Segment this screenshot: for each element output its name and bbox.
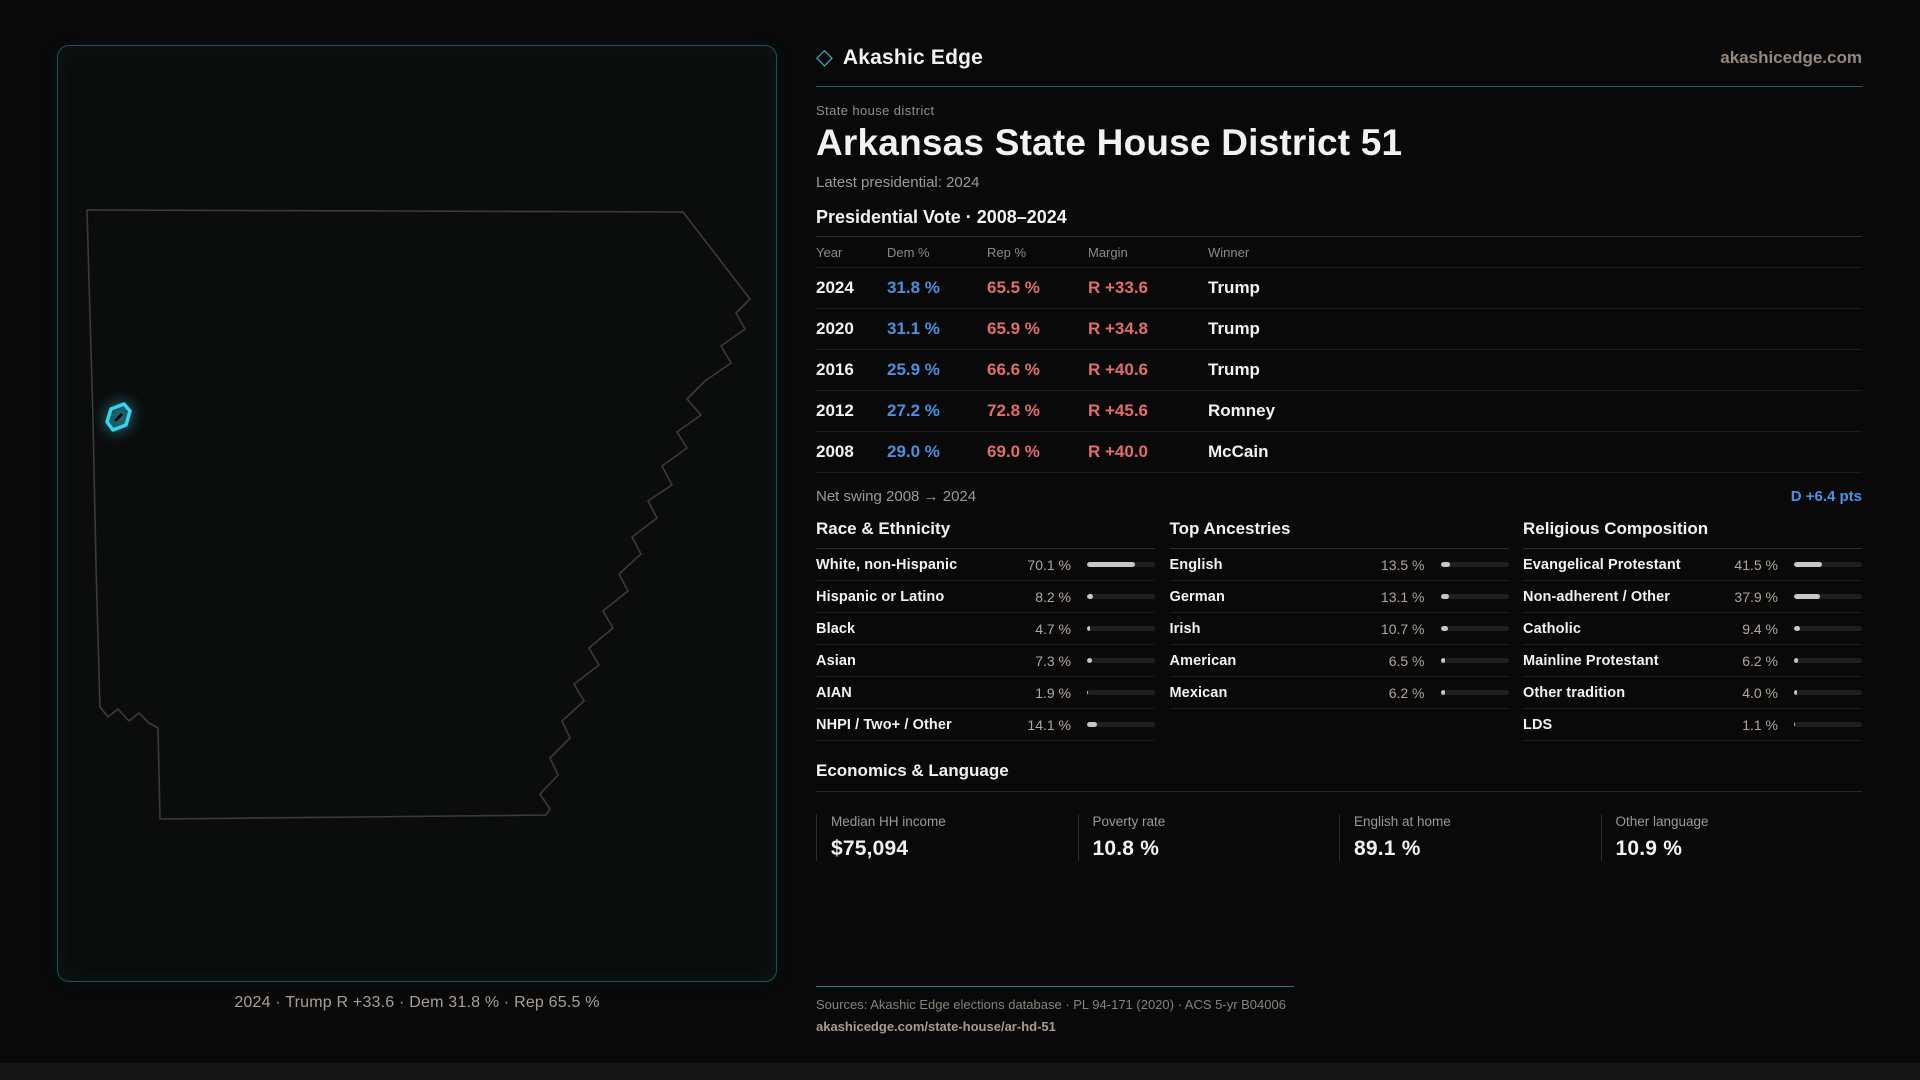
demo-bar [1087, 722, 1155, 727]
demo-label: Irish [1170, 621, 1363, 637]
demo-label: Asian [816, 653, 1009, 669]
vote-rep-pct: 66.6 % [987, 360, 1088, 380]
econ-stat-label: Median HH income [831, 814, 1078, 829]
header-divider [816, 86, 1862, 87]
demo-bar [1441, 594, 1509, 599]
demo-row: Mainline Protestant6.2 % [1523, 645, 1862, 677]
demo-bar-fill [1794, 562, 1822, 567]
vote-margin: R +33.6 [1088, 278, 1208, 298]
demo-row: Mexican6.2 % [1170, 677, 1509, 709]
demo-row: Irish10.7 % [1170, 613, 1509, 645]
econ-stat-label: Other language [1616, 814, 1863, 829]
demo-bar [1087, 690, 1155, 695]
district-type-label: State house district [816, 103, 1862, 118]
demo-value: 6.2 % [1363, 685, 1425, 701]
demo-value: 6.5 % [1363, 653, 1425, 669]
demo-value: 9.4 % [1716, 621, 1778, 637]
demo-row: Catholic9.4 % [1523, 613, 1862, 645]
demo-bar-fill [1441, 626, 1448, 631]
demo-bar [1087, 626, 1155, 631]
demo-label: Hispanic or Latino [816, 589, 1009, 605]
brand-diamond-icon: ◇ [816, 46, 833, 68]
vote-year: 2024 [816, 278, 887, 298]
header: ◇ Akashic Edge akashicedge.com [816, 40, 1862, 76]
demo-row: Evangelical Protestant41.5 % [1523, 549, 1862, 581]
demo-value: 10.7 % [1363, 621, 1425, 637]
vote-table-title: Presidential Vote · 2008–2024 [816, 207, 1862, 228]
demo-bar-fill [1794, 690, 1797, 695]
demo-value: 4.0 % [1716, 685, 1778, 701]
demo-label: Catholic [1523, 621, 1716, 637]
vote-dem-pct: 25.9 % [887, 360, 987, 380]
vote-margin: R +45.6 [1088, 401, 1208, 421]
demo-value: 13.1 % [1363, 589, 1425, 605]
vote-col-header: Year [816, 245, 887, 260]
demo-value: 4.7 % [1009, 621, 1071, 637]
vote-col-header: Winner [1208, 245, 1862, 260]
arkansas-map [58, 46, 776, 981]
vote-winner: Trump [1208, 319, 1862, 339]
demo-value: 6.2 % [1716, 653, 1778, 669]
vote-table-row: 202431.8 %65.5 %R +33.6Trump [816, 268, 1862, 309]
demographics-section: Race & EthnicityWhite, non-Hispanic70.1 … [816, 519, 1862, 741]
econ-stat-value: 10.8 % [1093, 837, 1340, 861]
demo-label: Non-adherent / Other [1523, 589, 1716, 605]
demo-value: 8.2 % [1009, 589, 1071, 605]
demo-row: Asian7.3 % [816, 645, 1155, 677]
vote-col-header: Margin [1088, 245, 1208, 260]
demo-value: 70.1 % [1009, 557, 1071, 573]
vote-winner: Trump [1208, 278, 1862, 298]
demo-value: 13.5 % [1363, 557, 1425, 573]
econ-stat: English at home89.1 % [1339, 814, 1601, 861]
demo-bar-fill [1794, 594, 1820, 599]
demo-bar-fill [1087, 658, 1092, 663]
demo-bar [1794, 626, 1862, 631]
vote-table-row: 202031.1 %65.9 %R +34.8Trump [816, 309, 1862, 350]
latest-presidential-label: Latest presidential: 2024 [816, 174, 1862, 191]
demo-bar [1794, 722, 1862, 727]
demo-label: Other tradition [1523, 685, 1716, 701]
demo-label: Mexican [1170, 685, 1363, 701]
vote-rep-pct: 65.9 % [987, 319, 1088, 339]
page-title: Arkansas State House District 51 [816, 122, 1862, 164]
econ-stat-value: 89.1 % [1354, 837, 1601, 861]
vote-rep-pct: 65.5 % [987, 278, 1088, 298]
demo-label: German [1170, 589, 1363, 605]
demo-row: Hispanic or Latino8.2 % [816, 581, 1155, 613]
presidential-vote-table: YearDem %Rep %MarginWinner 202431.8 %65.… [816, 236, 1862, 473]
bottom-band [0, 1063, 1920, 1080]
state-outline [87, 210, 750, 819]
net-swing-label: Net swing 2008 → 2024 [816, 488, 976, 505]
demo-row: American6.5 % [1170, 645, 1509, 677]
econ-stat-value: $75,094 [831, 837, 1078, 861]
demo-column-title: Top Ancestries [1170, 519, 1509, 549]
vote-year: 2020 [816, 319, 887, 339]
demo-value: 1.1 % [1716, 717, 1778, 733]
demo-value: 37.9 % [1716, 589, 1778, 605]
brand-name: Akashic Edge [843, 46, 983, 70]
vote-margin: R +40.0 [1088, 442, 1208, 462]
demo-bar [1794, 658, 1862, 663]
demo-bar-fill [1794, 626, 1800, 631]
demo-row: Other tradition4.0 % [1523, 677, 1862, 709]
demo-bar-fill [1441, 658, 1445, 663]
demo-bar [1441, 690, 1509, 695]
demo-value: 14.1 % [1009, 717, 1071, 733]
demo-row: German13.1 % [1170, 581, 1509, 613]
vote-year: 2008 [816, 442, 887, 462]
demo-label: Evangelical Protestant [1523, 557, 1716, 573]
footer: Sources: Akashic Edge elections database… [816, 986, 1336, 1034]
vote-dem-pct: 31.8 % [887, 278, 987, 298]
vote-table-row: 201625.9 %66.6 %R +40.6Trump [816, 350, 1862, 391]
demo-bar [1794, 690, 1862, 695]
demo-bar [1441, 626, 1509, 631]
demo-bar-fill [1794, 722, 1795, 727]
economics-stats-row: Median HH income$75,094Poverty rate10.8 … [816, 814, 1862, 861]
footer-divider [816, 986, 1294, 987]
demo-value: 7.3 % [1009, 653, 1071, 669]
demo-bar [1087, 658, 1155, 663]
vote-dem-pct: 29.0 % [887, 442, 987, 462]
net-swing-value: D +6.4 pts [1791, 488, 1862, 505]
vote-rep-pct: 72.8 % [987, 401, 1088, 421]
vote-margin: R +40.6 [1088, 360, 1208, 380]
report-content: ◇ Akashic Edge akashicedge.com State hou… [816, 40, 1862, 861]
demo-bar [1794, 594, 1862, 599]
demo-row: AIAN1.9 % [816, 677, 1155, 709]
demo-bar [1441, 562, 1509, 567]
page: 2024 · Trump R +33.6 · Dem 31.8 % · Rep … [0, 0, 1920, 1080]
vote-year: 2012 [816, 401, 887, 421]
demo-row: NHPI / Two+ / Other14.1 % [816, 709, 1155, 741]
vote-table-row: 200829.0 %69.0 %R +40.0McCain [816, 432, 1862, 473]
vote-winner: McCain [1208, 442, 1862, 462]
demo-column-religion: Religious CompositionEvangelical Protest… [1523, 519, 1862, 741]
demo-value: 41.5 % [1716, 557, 1778, 573]
demo-bar [1441, 658, 1509, 663]
vote-dem-pct: 31.1 % [887, 319, 987, 339]
demo-bar-fill [1794, 658, 1798, 663]
demo-row: Non-adherent / Other37.9 % [1523, 581, 1862, 613]
demo-label: LDS [1523, 717, 1716, 733]
demo-label: Black [816, 621, 1009, 637]
vote-dem-pct: 27.2 % [887, 401, 987, 421]
demo-label: AIAN [816, 685, 1009, 701]
demo-row: White, non-Hispanic70.1 % [816, 549, 1155, 581]
econ-stat-label: English at home [1354, 814, 1601, 829]
demo-column-title: Race & Ethnicity [816, 519, 1155, 549]
net-swing-row: Net swing 2008 → 2024 D +6.4 pts [816, 488, 1862, 505]
demo-label: English [1170, 557, 1363, 573]
demo-column-title: Religious Composition [1523, 519, 1862, 549]
econ-stat: Median HH income$75,094 [816, 814, 1078, 861]
demo-bar-fill [1441, 562, 1450, 567]
demo-bar-fill [1441, 690, 1445, 695]
vote-col-header: Dem % [887, 245, 987, 260]
brand-domain-link[interactable]: akashicedge.com [1720, 48, 1862, 68]
vote-winner: Trump [1208, 360, 1862, 380]
map-caption: 2024 · Trump R +33.6 · Dem 31.8 % · Rep … [57, 994, 777, 1012]
vote-margin: R +34.8 [1088, 319, 1208, 339]
vote-year: 2016 [816, 360, 887, 380]
demo-row: English13.5 % [1170, 549, 1509, 581]
demo-label: White, non-Hispanic [816, 557, 1009, 573]
vote-rep-pct: 69.0 % [987, 442, 1088, 462]
demo-bar [1087, 562, 1155, 567]
vote-col-header: Rep % [987, 245, 1088, 260]
demo-row: Black4.7 % [816, 613, 1155, 645]
demo-column-race: Race & EthnicityWhite, non-Hispanic70.1 … [816, 519, 1155, 741]
demo-bar [1794, 562, 1862, 567]
econ-stat-label: Poverty rate [1093, 814, 1340, 829]
demo-label: NHPI / Two+ / Other [816, 717, 1009, 733]
econ-stat-value: 10.9 % [1616, 837, 1863, 861]
vote-winner: Romney [1208, 401, 1862, 421]
demo-bar-fill [1087, 562, 1135, 567]
economics-title: Economics & Language [816, 761, 1862, 792]
demo-label: Mainline Protestant [1523, 653, 1716, 669]
vote-table-header-row: YearDem %Rep %MarginWinner [816, 236, 1862, 268]
demo-value: 1.9 % [1009, 685, 1071, 701]
demo-bar-fill [1087, 722, 1097, 727]
econ-stat: Other language10.9 % [1601, 814, 1863, 861]
demo-bar-fill [1087, 626, 1090, 631]
econ-stat: Poverty rate10.8 % [1078, 814, 1340, 861]
district-51-highlight[interactable] [107, 404, 130, 430]
demo-row: LDS1.1 % [1523, 709, 1862, 741]
footer-sources: Sources: Akashic Edge elections database… [816, 997, 1336, 1012]
demo-bar-fill [1087, 594, 1093, 599]
footer-permalink[interactable]: akashicedge.com/state-house/ar-hd-51 [816, 1019, 1336, 1034]
demo-label: American [1170, 653, 1363, 669]
vote-table-row: 201227.2 %72.8 %R +45.6Romney [816, 391, 1862, 432]
demo-bar [1087, 594, 1155, 599]
district-map-panel [57, 45, 777, 982]
demo-bar-fill [1087, 690, 1088, 695]
demo-column-ancestries: Top AncestriesEnglish13.5 %German13.1 %I… [1170, 519, 1509, 741]
demo-bar-fill [1441, 594, 1450, 599]
